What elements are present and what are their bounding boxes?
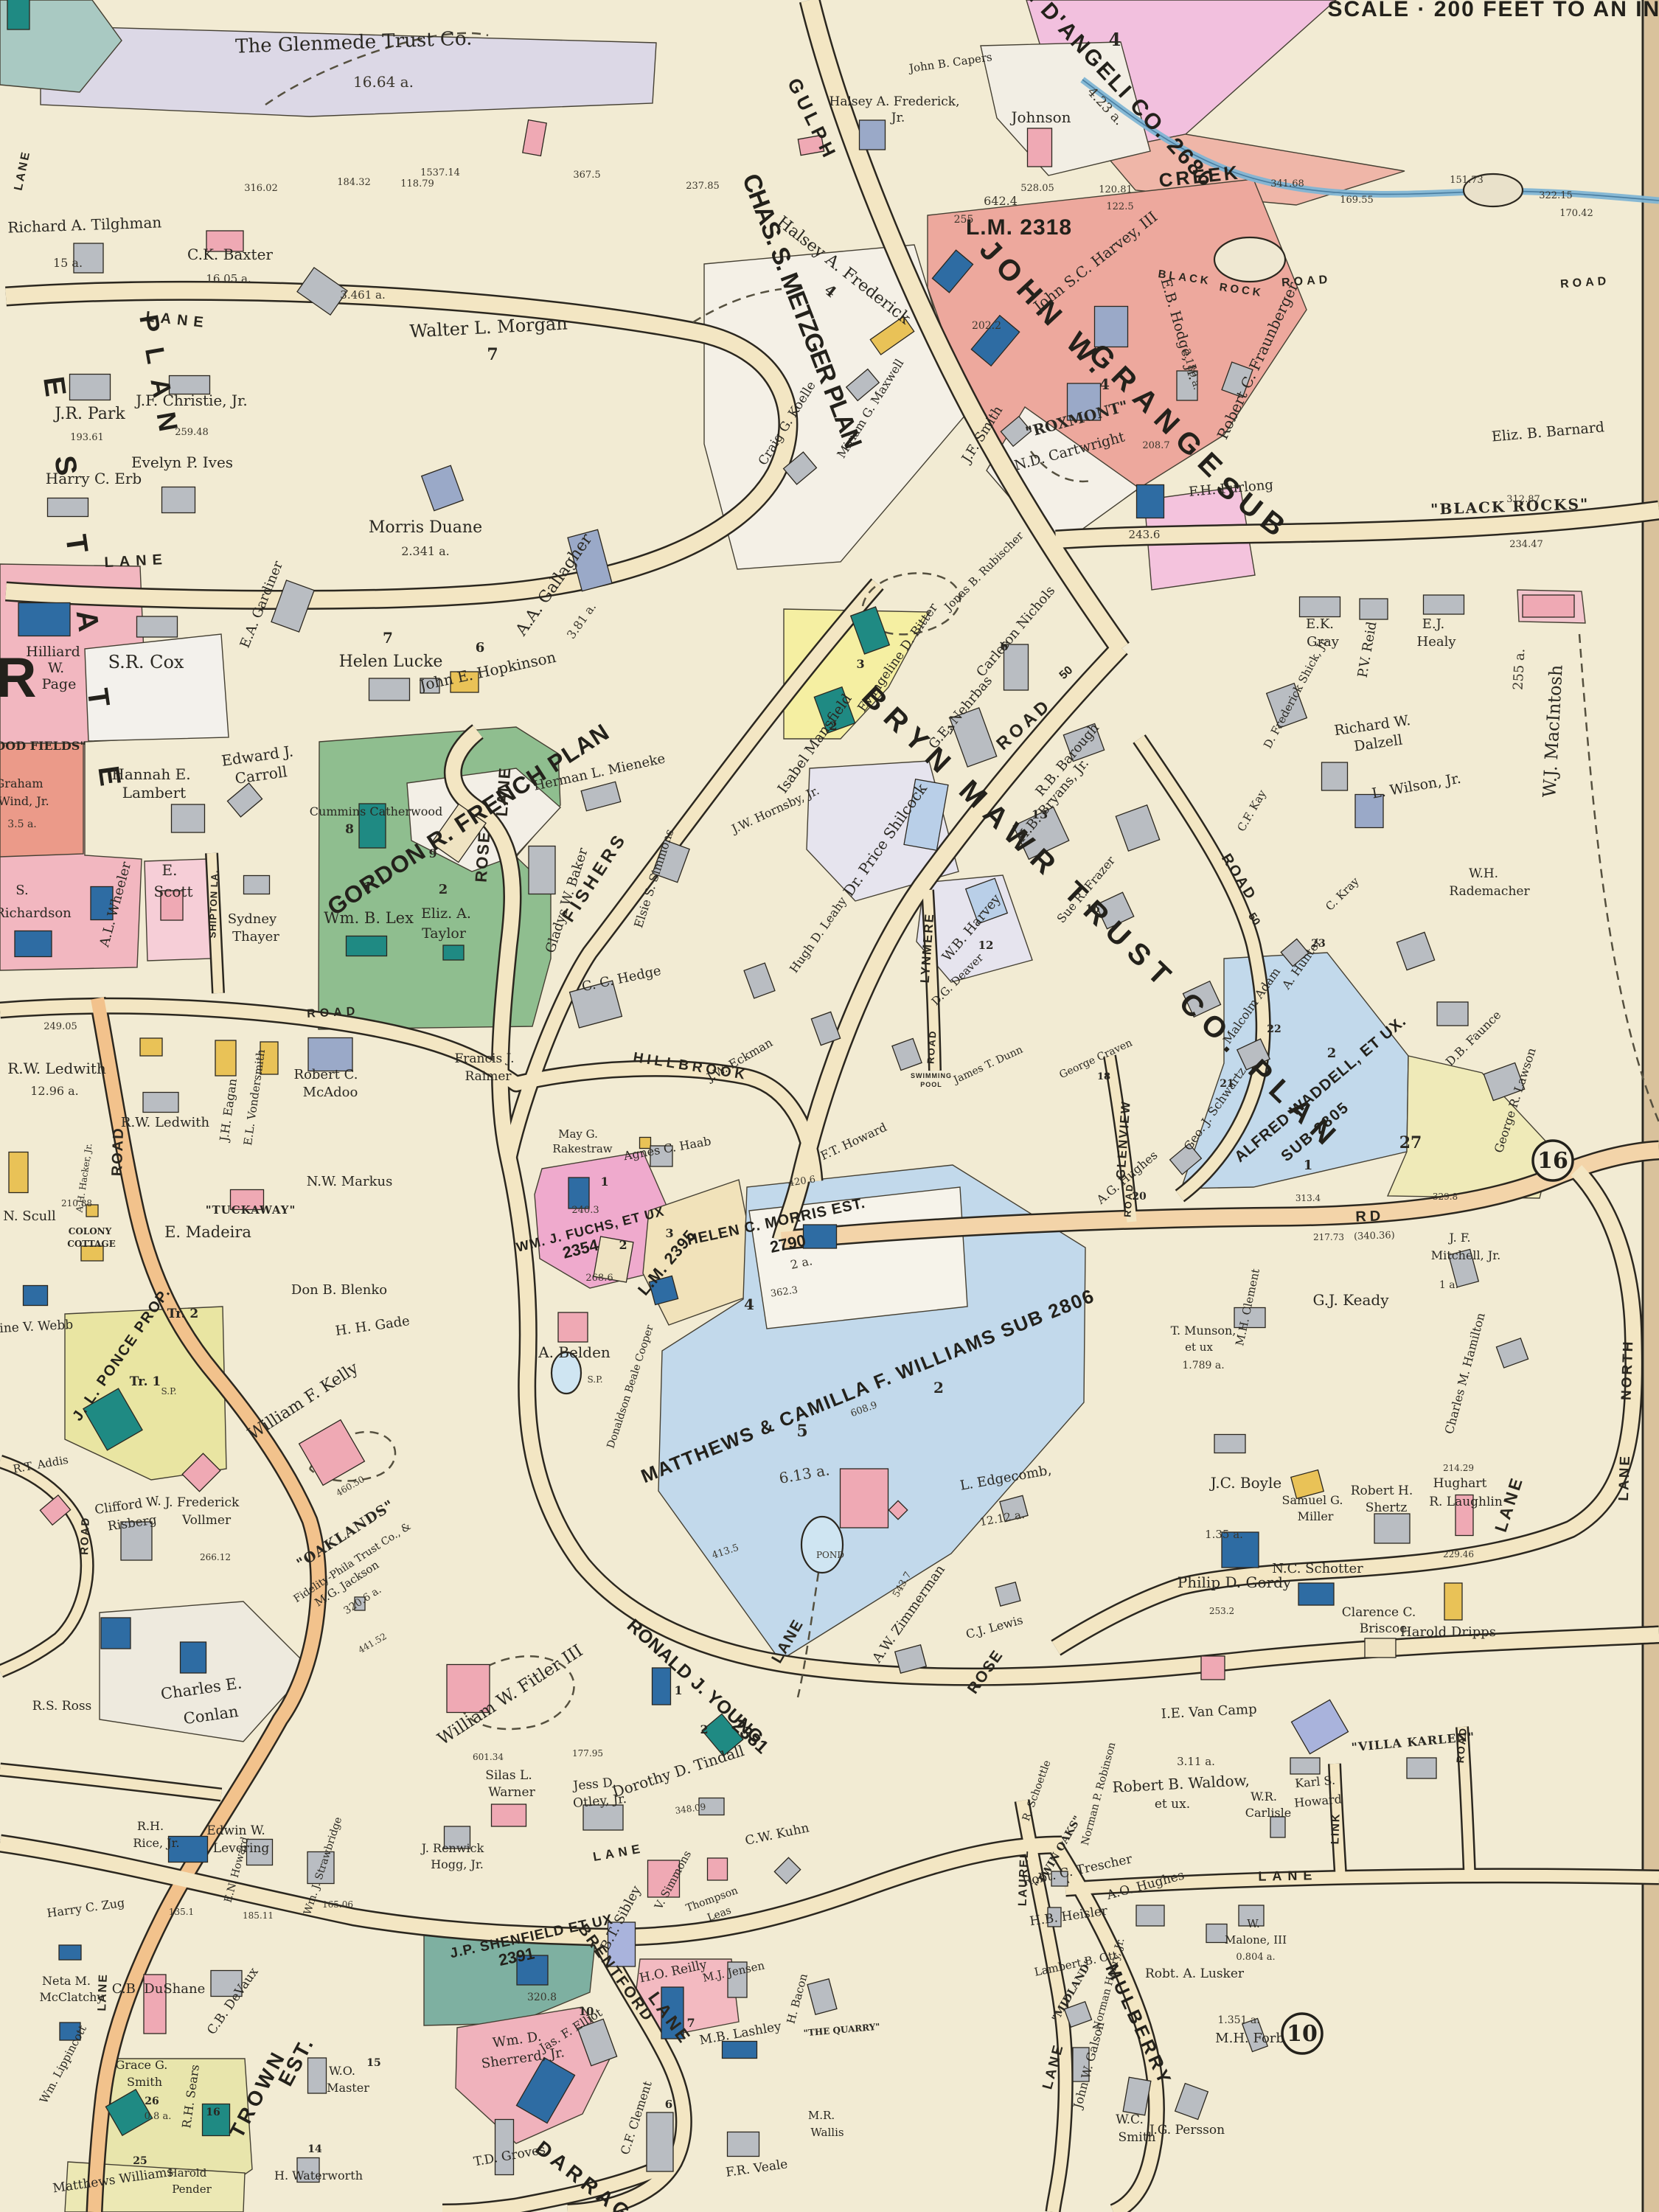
owner-label: Thayer [232,929,279,945]
owner-label: Warner [488,1785,535,1800]
building [308,1038,352,1071]
owner-label: J.F. Christie, Jr. [134,392,247,409]
dimension-label: 320.8 [527,1992,557,2003]
parcel-number: 2 [619,1238,627,1252]
owner-label: J.R. Park [53,405,125,423]
dimension-label: 255 a. [1511,648,1528,691]
dimension-label: 135.1 [169,1907,194,1917]
dimension-label: 266.12 [200,1552,231,1562]
parcel-number: 8 [345,822,354,837]
building [137,616,178,637]
parcel-number: 26 [145,2096,159,2107]
dimension-label: 16.64 a. [353,73,414,91]
parcel-number: 2 [1327,1046,1337,1061]
owner-label: Cummins Catherwood [310,804,442,818]
dimension-label: (340.36) [1354,1230,1395,1242]
building [101,1618,131,1649]
owner-label: Graham [0,776,43,790]
dimension-label: 217.73 [1313,1232,1344,1242]
parcel-number: 7 [686,2016,695,2030]
owner-label: W. [48,660,64,676]
dimension-label: 243.6 [1129,528,1161,541]
dimension-label: 3.5 a. [7,818,37,830]
dimension-label: 528.05 [1020,183,1054,194]
dimension-label: 2.341 a. [401,544,450,558]
parcel-number: 21 [1220,1078,1234,1090]
dimension-label: 170.42 [1559,208,1593,219]
building [308,2058,327,2093]
owner-label: Wm. B. Lex [324,909,414,927]
owner-label: W.H. [1469,866,1498,881]
owner-label: Malone, III [1225,1933,1287,1947]
parcel-number: 13 [1032,807,1048,821]
building [15,931,52,957]
building [1444,1583,1462,1620]
svg-text:16: 16 [1537,1148,1568,1174]
building [1028,128,1052,167]
owner-label: Healy [1416,634,1456,650]
parcel-number: 2 [439,882,448,897]
building [1290,1758,1320,1774]
owner-label: J. Frederick [164,1495,240,1510]
plan-label: SCALE · 200 FEET TO AN INCH [1327,0,1659,21]
owner-label: Jr. [890,111,905,125]
road-label: LANE [1616,1454,1633,1501]
owner-label: R.H. [137,1819,164,1833]
dimension-label: 255 [954,214,974,226]
owner-label: J.G. Persson [1148,2123,1225,2138]
building [653,1668,671,1705]
owner-label: E.K. [1306,616,1334,632]
dimension-label: 268.6 [585,1273,613,1284]
building [172,804,205,832]
owner-label: et ux [1185,1340,1213,1354]
owner-label: Wallis [810,2126,844,2139]
dimension-label: 259.48 [175,427,209,438]
owner-label: N.W. Markus [307,1174,393,1189]
dimension-label: 1.35 a. [1205,1528,1243,1541]
dimension-label: 16.05 a. [206,272,251,285]
dimension-label: 322.15 [1539,190,1573,201]
parcel-number: 5 [796,1422,807,1441]
owner-label: Taylor [422,925,467,942]
owner-label: M.R. [808,2109,835,2122]
building [1374,1514,1410,1543]
building [1201,1656,1225,1680]
owner-label: Johnson [1009,108,1071,126]
road-label: LINK [1329,1812,1342,1845]
dimension-label: 165.06 [322,1899,353,1910]
parcel-number: 4 [744,1295,754,1313]
dimension-label: 229.46 [1443,1549,1474,1559]
owner-label: Miller [1298,1509,1334,1523]
owner-label: Wind, Jr. [0,794,49,808]
parcel-number: Tr. 2 [167,1307,198,1321]
building [558,1312,588,1342]
owner-label: Vollmer [181,1513,232,1528]
owner-label: C.B. DuShane [112,1981,205,1997]
road-label: ROSE [472,830,494,883]
owner-label: Robert C. [294,1067,358,1082]
parcel-number: 1 [674,1683,682,1697]
road-label: NORTH [1619,1339,1637,1400]
dimension-label: 237.85 [686,181,720,192]
owner-label: W. [1247,1917,1260,1930]
owner-label: Sydney [228,911,277,927]
dimension-label: 120.81 [1099,184,1133,195]
parcel-number: 2 [700,1722,708,1736]
owner-label: Page [42,676,77,692]
owner-label: Clarence C. [1342,1605,1416,1620]
owner-label: R.S. Ross [32,1699,92,1714]
building [59,1945,81,1960]
parcel-number: 1 [364,880,373,895]
owner-label: Hogg, Jr. [431,1857,484,1871]
owner-label: T. Munson, [1171,1324,1237,1338]
owner-label: Master [327,2081,369,2095]
building [1270,1817,1285,1837]
dimension-label: 240.3 [571,1205,599,1216]
road-label: SWIMMING [911,1072,952,1079]
parcel-number: 2 [933,1379,944,1397]
dimension-label: 329.8 [1433,1192,1458,1202]
building [162,487,195,513]
parcel-number: 12 [978,939,994,952]
sheet-number-badge: 16 [1533,1141,1573,1180]
owner-label: Harry C. Erb [46,470,142,487]
owner-label: Raimer [465,1069,512,1084]
parcel-number: 9 [428,846,437,860]
owner-label: W.C. [1116,2112,1144,2127]
building [804,1225,837,1248]
dimension-label: 1.789 a. [1182,1360,1224,1371]
road-label: LANE [1258,1868,1318,1883]
owner-label: Samuel G. [1282,1493,1343,1507]
building [143,1093,178,1113]
building [347,936,387,956]
dimension-label: 208.7 [1142,440,1169,451]
building [1095,307,1128,347]
dimension-label: S.P. [587,1374,602,1385]
parcel-number: 6 [1000,639,1008,653]
dimension-label: 253.2 [1209,1606,1234,1616]
sheet-number-badge: 10 [1282,2014,1322,2053]
dimension-label: 118.79 [400,178,434,189]
owner-label: Smith [127,2075,162,2089]
dimension-label: 202.2 [972,320,1001,332]
building [841,1469,888,1528]
building [24,1286,48,1306]
owner-label: Hilliard [26,644,80,660]
parcel-number: 7 [383,629,393,647]
owner-label: Eliz. A. [421,905,471,922]
owner-label: Scott [153,883,192,900]
dimension-label: 367.5 [573,170,600,181]
pond [801,1517,843,1573]
dimension-label: 3.11 a. [1177,1755,1215,1768]
parcel-number: 7 [947,723,955,737]
owner-label: Halsey A. Frederick, [829,94,960,109]
place-name: "TUCKAWAY" [206,1203,296,1217]
owner-label: A. Belden [538,1343,611,1361]
building [1206,1924,1227,1943]
building [568,1178,589,1208]
building [1298,1583,1334,1605]
owner-label: Rakestraw [552,1142,612,1155]
svg-text:10: 10 [1287,2021,1318,2047]
dimension-label: 1 a. [1439,1279,1458,1291]
owner-label: Harold [168,2166,207,2180]
owner-label: R.W. Ledwith [7,1060,106,1077]
building [1360,599,1388,619]
owner-label: N. Scull [3,1208,56,1224]
owner-label: May G. [558,1127,598,1141]
road-label: ROAD [78,1516,92,1555]
owner-label: J. Renwick [420,1841,484,1855]
dimension-label: 316.02 [244,183,278,194]
parcel-number: 18 [1097,1071,1110,1082]
owner-label: R. Laughlin [1429,1495,1503,1509]
dimension-label: 169.55 [1340,195,1374,206]
dimension-label: 234.47 [1509,539,1543,550]
dimension-label: 193.61 [70,432,104,443]
owner-label: Morris Duane [369,518,482,537]
owner-label: Mitchell, Jr. [1431,1248,1500,1262]
place-name: COTTAGE [67,1239,115,1249]
building [70,375,111,400]
owner-label: Pender [172,2183,212,2196]
building [708,1858,728,1880]
road-label: POOL [920,1081,942,1088]
owner-label: Robert H. [1351,1484,1413,1498]
place-name: OOD FIELDS" [0,739,86,753]
building [495,2120,514,2175]
building [492,1804,526,1826]
owner-label: Evelyn P. Ives [131,453,233,471]
dimension-label: 0.804 a. [1236,1952,1275,1963]
building [529,846,555,894]
parcel-number: 2 [829,719,837,733]
road-label: RD [1355,1208,1385,1225]
road-label: ROAD [109,1127,127,1177]
building [1424,595,1464,614]
parcel-number: 16 [206,2107,220,2118]
dimension-label: 1537.14 [420,167,460,178]
parcel-number: 22 [1267,1023,1281,1035]
parcel-number: 16 [1085,903,1099,915]
dimension-label: 312.87 [1506,494,1540,505]
owner-label: Rice, Jr. [133,1836,179,1850]
dimension-label: POND [816,1550,844,1560]
owner-label: E. Madeira [164,1223,251,1241]
owner-label: E.J. [1422,616,1444,632]
parcel-number: 27 [1399,1133,1422,1152]
building [1365,1638,1396,1658]
owner-label: Hannah E. [111,765,190,783]
building [1137,485,1164,518]
parcel-number: 14 [307,2143,322,2155]
owner-label: Richardson [0,905,72,921]
atlas-sheet: The Glenmede Trust Co.16.64 a.SCALE · 20… [0,0,1659,2212]
parcel-number: 15 [366,2057,380,2069]
pond [1214,237,1285,282]
dimension-label: 214.29 [1443,1463,1474,1473]
building [140,1038,162,1056]
parcel-number: 4 [1099,375,1110,393]
parcel-number: 10 [579,2005,594,2018]
dimension-label: 12.96 a. [30,1084,79,1098]
owner-label: W.O. [329,2064,355,2078]
owner-label: Carlisle [1245,1806,1291,1820]
owner-label: Helen Lucke [339,653,443,671]
dimension-label: 177.95 [572,1748,603,1759]
parcel-number: 25 [133,2155,147,2167]
owner-label: S. [15,883,28,898]
owner-label: Lambert [122,784,186,801]
owner-label: C.K. Baxter [187,246,273,263]
parcel-number: 7 [487,345,498,364]
owner-label: R.W. Ledwith [121,1115,210,1130]
building [723,2042,757,2059]
building [18,603,70,636]
parcel-number: 1 [600,1175,608,1189]
dimension-label: 3.461 a. [340,288,385,302]
owner-label: G.J. Keady [1312,1291,1389,1309]
building [1523,595,1574,617]
owner-label: Silas L. [485,1768,532,1783]
parcel-number: 23 [1311,938,1325,950]
dimension-label: 341.68 [1270,178,1304,189]
owner-label: J. F. [1447,1231,1470,1245]
building [9,1152,28,1193]
plan-label: L.M. 2318 [966,215,1072,240]
building [48,498,88,517]
owner-label: H. Waterworth [274,2168,363,2183]
building [215,1040,236,1076]
dimension-label: 210.88 [61,1198,92,1208]
building [1322,762,1348,790]
dimension-label: 249.05 [44,1021,77,1032]
building [1136,1905,1164,1926]
dimension-label: 151.73 [1450,175,1484,186]
owner-label: Shertz [1366,1500,1408,1515]
owner-label: McClatchy [40,1990,104,2004]
owner-label: Don B. Blenko [291,1282,387,1298]
parcel-number: 3 [665,1226,673,1240]
owner-label: Rademacher [1449,884,1530,899]
owner-label: Grace G. [116,2058,168,2072]
owner-label: E. [162,861,178,879]
dimension-label: 122.5 [1106,201,1133,212]
owner-label: Neta M. [42,1974,91,1988]
building [647,2112,673,2171]
parcel-number: 4 [1109,29,1121,50]
owner-label: J.C. Boyle [1209,1474,1281,1492]
owner-label: McAdoo [303,1085,358,1100]
dimension-label: 313.4 [1295,1193,1321,1203]
building [443,945,464,960]
parcel-number: 1 [1304,1158,1313,1173]
owner-label: Edwin W. [206,1823,265,1838]
building [1407,1758,1436,1778]
parcel-number: Tr. 1 [130,1374,161,1389]
building [728,2132,759,2157]
owner-label: S.R. Cox [108,652,184,672]
road-label: LANE [493,766,515,817]
dimension-label: 642.4 [984,194,1018,208]
dimension-label: 1.351 a. [1217,2014,1259,2026]
owner-label: W.R. [1251,1790,1277,1804]
atlas-map: The Glenmede Trust Co.16.64 a.SCALE · 20… [0,0,1659,2212]
parcel-number: 20 [1132,1191,1147,1203]
road-label: LANE [104,552,168,571]
parcel-number: 6 [665,2098,672,2111]
building [860,120,886,150]
owner-label: Harold Dripps [1400,1624,1496,1640]
parcel-number: 3 [856,657,864,671]
parcel-number: 6 [476,640,485,655]
dimension-label: 15 a. [53,256,83,270]
dimension-label: 185.11 [243,1910,274,1921]
owner-label: Robt. A. Lusker [1145,1966,1245,1981]
owner-label: Francis J. [455,1051,515,1066]
dimension-label: 601.34 [473,1752,504,1762]
owner-label: Hughart [1433,1476,1487,1491]
place-name: COLONY [69,1226,112,1237]
building [1437,1002,1468,1026]
building [369,678,410,700]
dimension-label: 0.8 a. [145,2111,172,2122]
building [7,0,29,29]
dimension-label: S.P. [161,1386,176,1397]
owner-label: et ux. [1155,1797,1190,1812]
building [1214,1435,1245,1453]
building [244,876,270,894]
owner-label: N.C. Schotter [1272,1561,1363,1576]
building [1300,597,1340,617]
building [181,1642,206,1673]
dimension-label: 184.32 [337,177,371,188]
